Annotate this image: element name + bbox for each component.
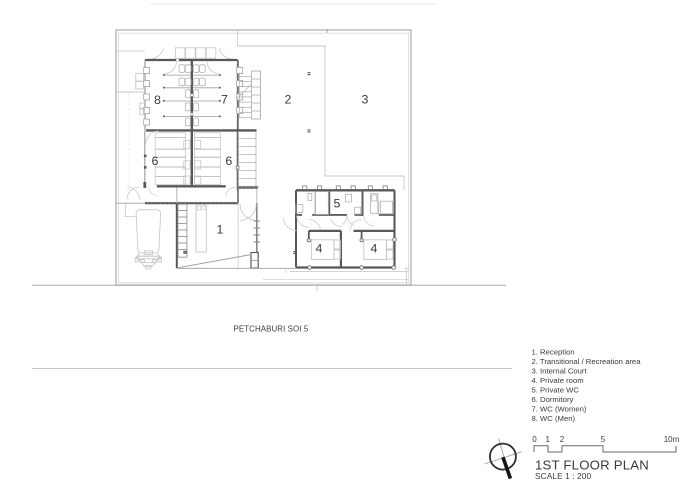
- svg-text:3. Internal Court: 3. Internal Court: [532, 367, 588, 376]
- svg-text:8. WC (Men): 8. WC (Men): [532, 414, 576, 423]
- svg-text:3: 3: [362, 93, 369, 107]
- svg-text:7: 7: [221, 93, 228, 107]
- svg-text:8: 8: [154, 93, 161, 107]
- svg-text:4: 4: [316, 242, 323, 256]
- svg-text:10m: 10m: [664, 435, 680, 444]
- svg-text:4: 4: [371, 242, 378, 256]
- svg-text:4. Private room: 4. Private room: [532, 376, 584, 385]
- svg-text:6. Dormitory: 6. Dormitory: [532, 395, 574, 404]
- svg-text:5: 5: [334, 197, 341, 211]
- svg-text:5. Private WC: 5. Private WC: [532, 386, 580, 395]
- svg-text:1: 1: [545, 435, 550, 444]
- svg-text:SCALE 1 : 200: SCALE 1 : 200: [535, 471, 591, 481]
- svg-text:2: 2: [285, 93, 292, 107]
- svg-text:0: 0: [532, 435, 537, 444]
- svg-text:2. Transitional / Recreation a: 2. Transitional / Recreation area: [532, 357, 642, 366]
- svg-text:6: 6: [152, 154, 159, 168]
- svg-text:2: 2: [560, 435, 565, 444]
- svg-text:6: 6: [225, 154, 232, 168]
- svg-text:1: 1: [217, 223, 224, 237]
- svg-text:5: 5: [601, 435, 606, 444]
- svg-text:7. WC (Women): 7. WC (Women): [532, 405, 587, 414]
- svg-text:1. Reception: 1. Reception: [532, 348, 575, 357]
- svg-text:PETCHABURI SOI 5: PETCHABURI SOI 5: [234, 324, 309, 333]
